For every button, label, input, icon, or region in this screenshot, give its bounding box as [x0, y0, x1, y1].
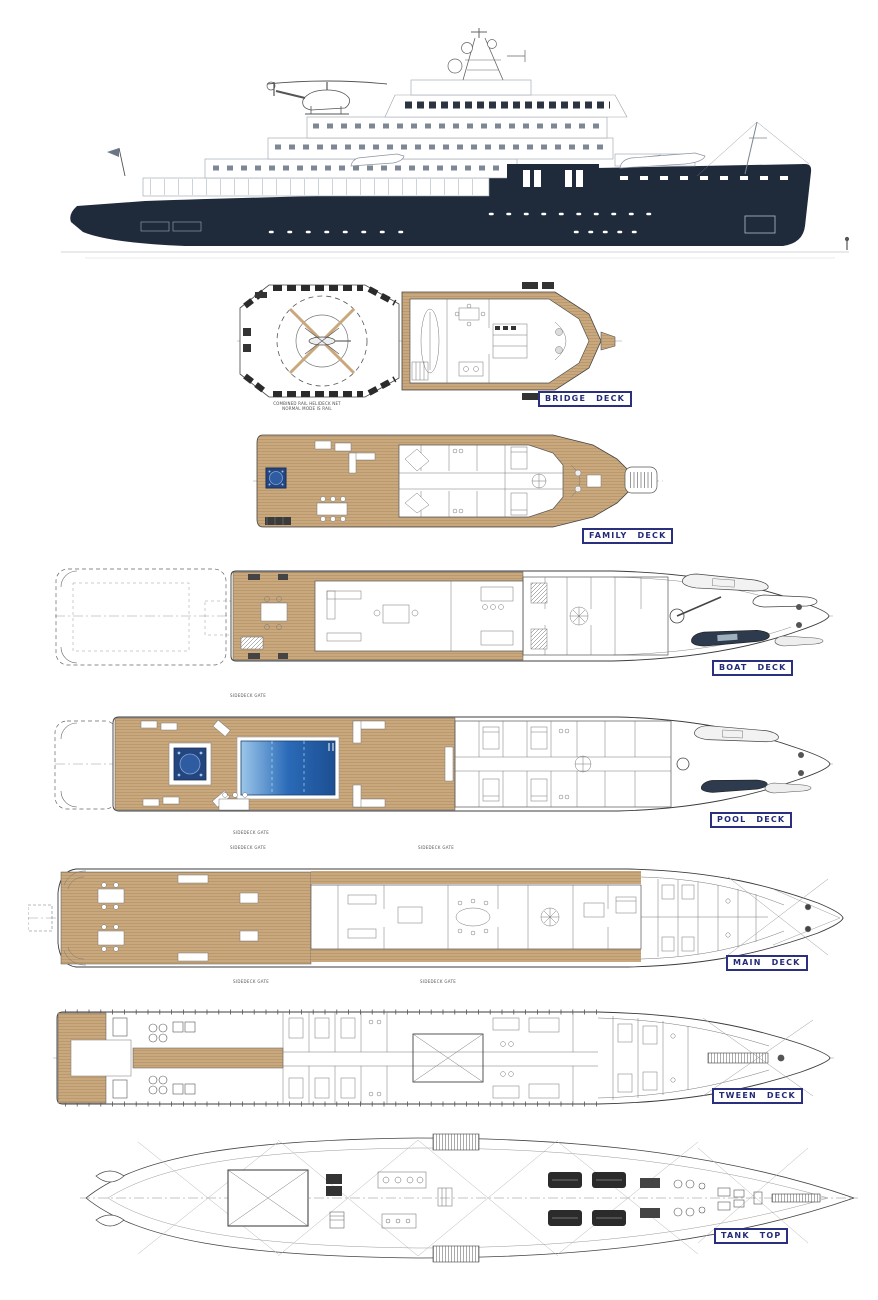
radar-mast — [448, 28, 525, 80]
tender-boat — [753, 595, 817, 607]
sidedeck-gate-label: SIDEDECK GATE — [233, 830, 269, 835]
equipment-aft — [326, 1174, 344, 1228]
tween-deck-drawing — [53, 988, 836, 1128]
planter — [265, 517, 291, 525]
label-tween-deck: TWEEN DECK — [712, 1088, 803, 1104]
label-tank-top: TANK TOP — [714, 1228, 788, 1244]
main-deck-drawing — [28, 843, 846, 990]
label-pool-deck: POOL DECK — [710, 812, 792, 828]
thruster-tunnels — [96, 1171, 124, 1226]
label-family-deck: FAMILY DECK — [582, 528, 673, 544]
yacht-profile — [55, 26, 855, 264]
helideck-note: COMBINED RAIL HELIDECK NET NORMAL MODE I… — [252, 401, 362, 411]
windlass — [796, 604, 802, 610]
family-deck-drawing — [253, 419, 663, 544]
label-bridge-deck: BRIDGE DECK — [538, 391, 632, 407]
helideck — [240, 285, 399, 397]
sidedeck-gate-label: SIDEDECK GATE — [418, 845, 454, 850]
wheelhouse — [402, 282, 615, 400]
deck-plan-family — [253, 419, 663, 544]
lazarette — [71, 1040, 131, 1076]
sidedeck-gate-label: SIDEDECK GATE — [420, 979, 456, 984]
deck-plan-main — [28, 843, 846, 990]
stern-flag — [107, 148, 125, 176]
funnel-block — [507, 164, 599, 196]
generator — [640, 1178, 660, 1188]
teak-corridor — [133, 1048, 283, 1068]
deck-plan-bridge — [237, 282, 622, 400]
deck-plan-tween — [53, 988, 836, 1128]
jacuzzi — [266, 468, 286, 488]
windlass — [796, 622, 802, 628]
teak-aft-deck — [61, 872, 311, 964]
crew-facilities — [378, 1172, 452, 1228]
sidedeck-gate-label: SIDEDECK GATE — [230, 845, 266, 850]
aft-helideck-outline — [56, 569, 257, 665]
swimming-pool — [237, 737, 339, 799]
helideck-note-line2: NORMAL MODE IS RAIL — [252, 406, 362, 411]
rescue-rib — [775, 636, 823, 646]
bow-shaft — [772, 1194, 820, 1202]
teak-side-deck — [311, 871, 641, 884]
bridge-deck-drawing — [237, 282, 622, 400]
helicopter — [267, 81, 387, 114]
tank-top-drawing — [78, 1128, 861, 1268]
main-engines — [548, 1172, 660, 1226]
sidedeck-gate-label: SIDEDECK GATE — [233, 979, 269, 984]
label-main-deck: MAIN DECK — [726, 955, 808, 971]
deck-store — [433, 1134, 479, 1150]
forward-platform — [625, 467, 657, 493]
sidedeck-gate-label: SIDEDECK GATE — [230, 693, 266, 698]
scale-figure — [845, 237, 848, 250]
ga-drawing-sheet: COMBINED RAIL HELIDECK NET NORMAL MODE I… — [0, 0, 878, 1300]
stern-platform-outline — [55, 721, 117, 809]
generator — [640, 1208, 660, 1218]
yacht-profile-drawing — [55, 26, 855, 264]
teak-side-deck — [311, 949, 641, 962]
jacuzzi — [169, 743, 211, 785]
tank — [228, 1170, 308, 1226]
deck-store — [433, 1246, 479, 1262]
label-boat-deck: BOAT DECK — [712, 660, 793, 676]
sky-lounge — [315, 581, 523, 651]
deck-plan-tank-top — [78, 1128, 861, 1268]
